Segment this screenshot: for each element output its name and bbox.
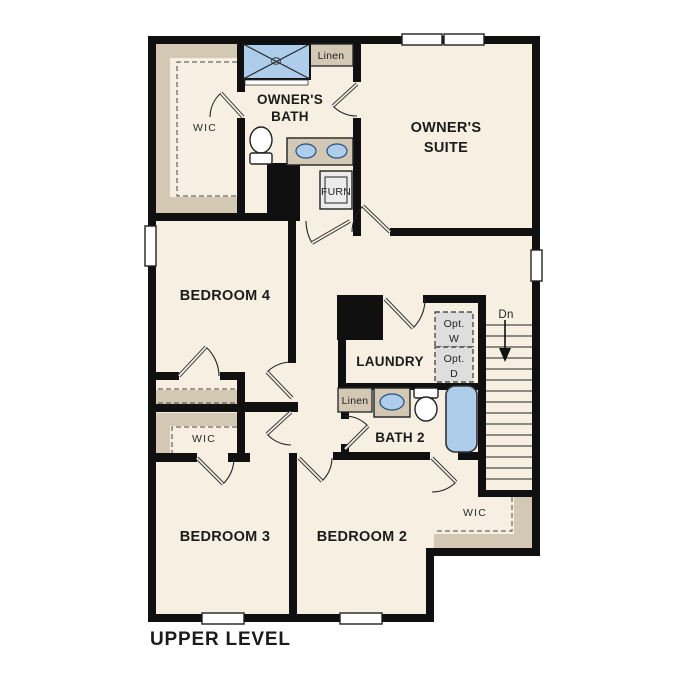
opt-washer-label-line2: W [449, 333, 459, 345]
bath2-label: BATH 2 [375, 430, 425, 445]
bath2-vanity [374, 388, 410, 417]
linen-bath2-label: Linen [342, 395, 369, 407]
shower-icon [243, 44, 310, 85]
bedroom2-label: BEDROOM 2 [317, 529, 408, 545]
owners-bath-label-line2: BATH [271, 109, 309, 124]
owners-suite-label-line2: SUITE [424, 140, 468, 156]
bedroom3-label: BEDROOM 3 [180, 529, 271, 545]
bath2-toilet-icon [414, 388, 438, 421]
wic-bedroom2-label: WIC [463, 507, 487, 519]
linen-top-label: Linen [318, 50, 345, 62]
plan-title: UPPER LEVEL [150, 629, 291, 650]
bathtub-icon [446, 386, 477, 452]
owners-suite-label-line1: OWNER'S [411, 120, 482, 136]
floor-plan-page: OWNER'S BATH WIC Linen OWNER'S SUITE FUR… [0, 0, 687, 687]
laundry-label: LAUNDRY [356, 354, 424, 369]
owners-bath-label-line1: OWNER'S [257, 92, 323, 107]
opt-washer-label-line1: Opt. [444, 318, 465, 330]
opt-dryer-label-line1: Opt. [444, 353, 465, 365]
owners-toilet-icon [250, 127, 272, 164]
furnace-label: FURN [321, 186, 351, 198]
wic-top-left-label: WIC [193, 122, 217, 134]
stairs-down-label: Dn [498, 309, 513, 321]
bedroom4-label: BEDROOM 4 [180, 288, 271, 304]
opt-dryer-label-line2: D [450, 368, 458, 380]
floor-plan-drawing: OWNER'S BATH WIC Linen OWNER'S SUITE FUR… [0, 0, 687, 687]
owners-vanity [287, 138, 353, 165]
wic-middle-label: WIC [192, 433, 216, 445]
